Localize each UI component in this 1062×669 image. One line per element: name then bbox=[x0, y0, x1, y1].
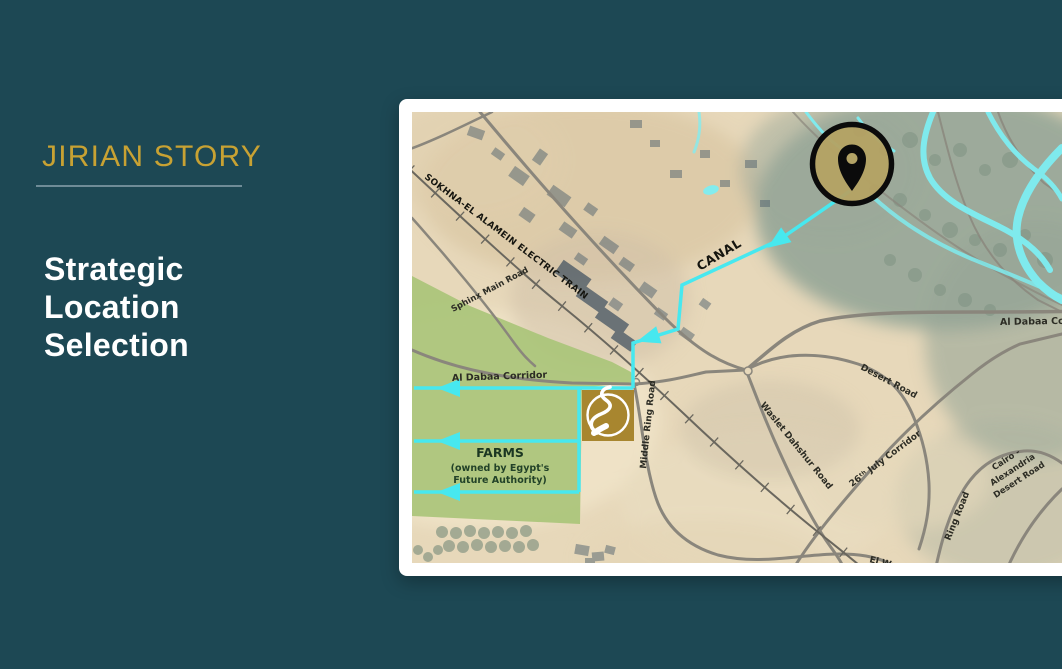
farms-sub-2: Future Authority) bbox=[453, 475, 546, 486]
farms-title: FARMS bbox=[476, 445, 524, 460]
jirian-logo-icon bbox=[582, 387, 634, 441]
slide: { "slide": { "kicker": "JIRIAN STORY", "… bbox=[0, 0, 1062, 669]
location-map: SOKHNA-EL ALAMEIN ELECTRIC TRAIN Sphinx … bbox=[412, 112, 1062, 563]
kicker-underline bbox=[36, 185, 242, 187]
farms-sub-1: (owned by Egypt's bbox=[451, 463, 550, 474]
map-viewport: SOKHNA-EL ALAMEIN ELECTRIC TRAIN Sphinx … bbox=[412, 112, 1062, 563]
location-pin-icon bbox=[813, 125, 892, 204]
al-dabaa-corridor-right-label: Al Dabaa Corridor bbox=[1000, 315, 1062, 328]
section-kicker: JIRIAN STORY bbox=[42, 140, 262, 174]
slide-title: Strategic Location Selection bbox=[44, 250, 294, 364]
map-panel: SOKHNA-EL ALAMEIN ELECTRIC TRAIN Sphinx … bbox=[399, 99, 1062, 576]
